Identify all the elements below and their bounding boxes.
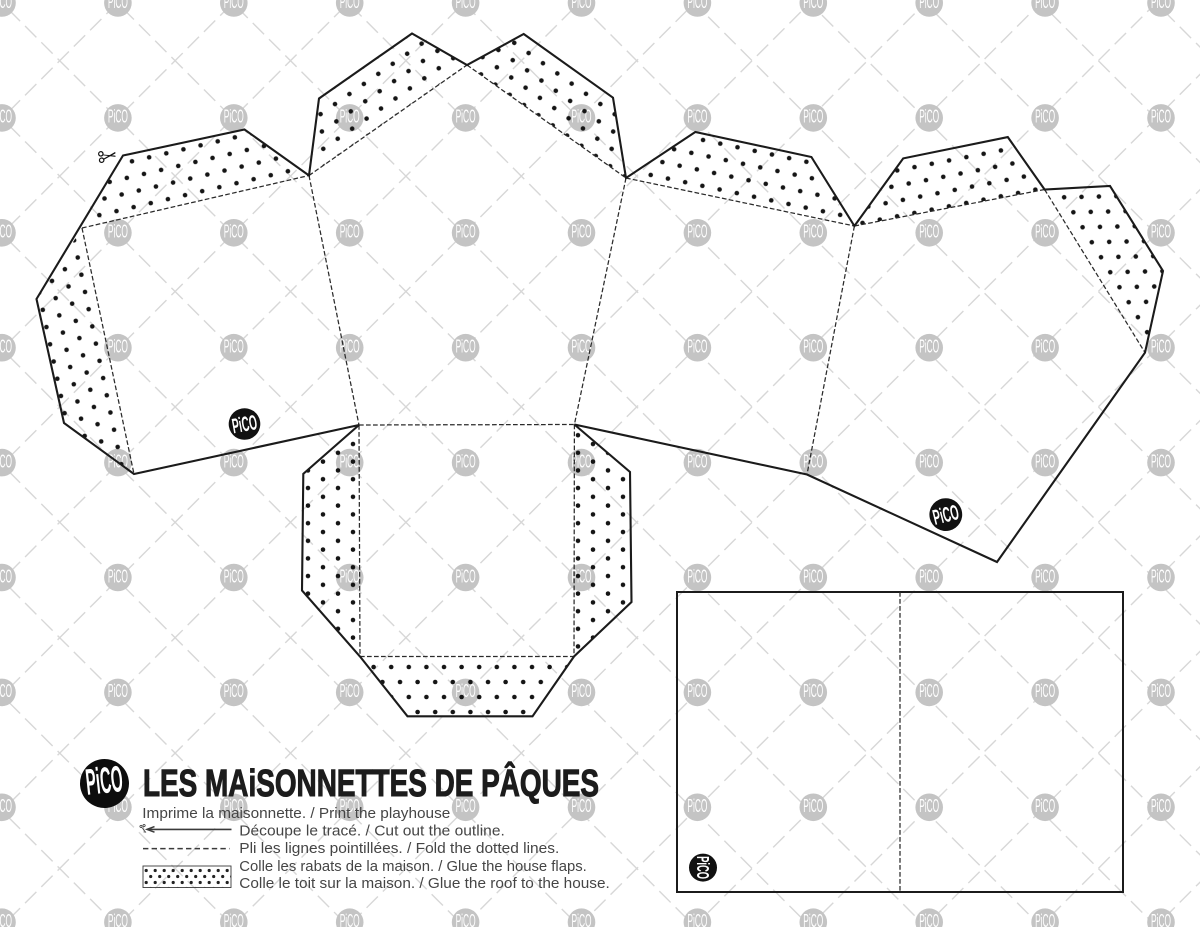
svg-text:PiCO: PiCO — [919, 681, 939, 702]
svg-text:PiCO: PiCO — [1151, 106, 1171, 127]
svg-text:PiCO: PiCO — [84, 759, 125, 804]
svg-text:PiCO: PiCO — [687, 911, 707, 927]
svg-text:PiCO: PiCO — [1035, 681, 1055, 702]
svg-text:PiCO: PiCO — [687, 681, 707, 702]
svg-text:PiCO: PiCO — [340, 0, 360, 12]
svg-text:PiCO: PiCO — [340, 681, 360, 702]
svg-text:PiCO: PiCO — [0, 0, 12, 12]
svg-text:PiCO: PiCO — [224, 566, 244, 587]
svg-text:PiCO: PiCO — [1035, 566, 1055, 587]
svg-text:PiCO: PiCO — [0, 911, 12, 927]
svg-text:PiCO: PiCO — [919, 911, 939, 927]
svg-text:PiCO: PiCO — [0, 681, 12, 702]
svg-text:PiCO: PiCO — [1151, 451, 1171, 472]
svg-text:Colle le toit sur la maison. /: Colle le toit sur la maison. / Glue the … — [239, 876, 610, 892]
svg-text:PiCO: PiCO — [803, 106, 823, 127]
svg-text:Imprime la maisonnette. / Prin: Imprime la maisonnette. / Print the play… — [142, 806, 450, 822]
svg-text:PiCO: PiCO — [1035, 0, 1055, 12]
svg-text:PiCO: PiCO — [224, 681, 244, 702]
svg-text:PiCO: PiCO — [919, 566, 939, 587]
svg-text:PiCO: PiCO — [456, 0, 476, 12]
svg-text:PiCO: PiCO — [108, 911, 128, 927]
svg-text:PiCO: PiCO — [108, 0, 128, 12]
svg-text:PiCO: PiCO — [0, 796, 12, 817]
svg-text:PiCO: PiCO — [1035, 336, 1055, 357]
svg-text:PiCO: PiCO — [919, 0, 939, 12]
svg-text:Colle les rabats de la maison.: Colle les rabats de la maison. / Glue th… — [239, 859, 587, 875]
svg-text:PiCO: PiCO — [0, 336, 12, 357]
svg-text:PiCO: PiCO — [919, 796, 939, 817]
svg-text:PiCO: PiCO — [340, 221, 360, 242]
svg-text:PiCO: PiCO — [572, 221, 592, 242]
svg-text:PiCO: PiCO — [1035, 796, 1055, 817]
svg-text:PiCO: PiCO — [803, 221, 823, 242]
svg-text:PiCO: PiCO — [1151, 681, 1171, 702]
svg-text:PiCO: PiCO — [224, 911, 244, 927]
svg-text:PiCO: PiCO — [803, 566, 823, 587]
svg-text:PiCO: PiCO — [803, 0, 823, 12]
svg-text:PiCO: PiCO — [803, 911, 823, 927]
svg-text:PiCO: PiCO — [1151, 796, 1171, 817]
svg-text:PiCO: PiCO — [340, 911, 360, 927]
svg-text:PiCO: PiCO — [803, 336, 823, 357]
svg-text:PiCO: PiCO — [803, 451, 823, 472]
svg-text:PiCO: PiCO — [0, 566, 12, 587]
svg-text:PiCO: PiCO — [224, 336, 244, 357]
svg-text:PiCO: PiCO — [0, 451, 12, 472]
svg-text:PiCO: PiCO — [919, 336, 939, 357]
svg-text:PiCO: PiCO — [803, 681, 823, 702]
svg-text:PiCO: PiCO — [919, 451, 939, 472]
svg-text:PiCO: PiCO — [1151, 336, 1171, 357]
svg-text:PiCO: PiCO — [108, 221, 128, 242]
svg-text:PiCO: PiCO — [1035, 221, 1055, 242]
svg-text:PiCO: PiCO — [108, 681, 128, 702]
svg-text:PiCO: PiCO — [687, 336, 707, 357]
svg-text:PiCO: PiCO — [108, 336, 128, 357]
svg-text:PiCO: PiCO — [572, 911, 592, 927]
svg-text:PiCO: PiCO — [1035, 451, 1055, 472]
svg-text:PiCO: PiCO — [687, 0, 707, 12]
svg-text:PiCO: PiCO — [456, 911, 476, 927]
svg-text:PiCO: PiCO — [340, 336, 360, 357]
svg-text:PiCO: PiCO — [224, 221, 244, 242]
svg-text:PiCO: PiCO — [456, 336, 476, 357]
svg-text:PiCO: PiCO — [1151, 911, 1171, 927]
svg-text:PiCO: PiCO — [456, 451, 476, 472]
svg-text:PiCO: PiCO — [687, 221, 707, 242]
svg-text:PiCO: PiCO — [687, 106, 707, 127]
svg-text:PiCO: PiCO — [1035, 106, 1055, 127]
svg-text:PiCO: PiCO — [572, 0, 592, 12]
svg-text:PiCO: PiCO — [0, 106, 12, 127]
svg-text:PiCO: PiCO — [456, 106, 476, 127]
svg-text:LES MAiSONNETTES DE PÂQUES: LES MAiSONNETTES DE PÂQUES — [143, 761, 599, 805]
svg-text:PiCO: PiCO — [572, 681, 592, 702]
svg-text:PiCO: PiCO — [919, 106, 939, 127]
svg-text:PiCO: PiCO — [803, 796, 823, 817]
svg-text:PiCO: PiCO — [108, 106, 128, 127]
svg-text:PiCO: PiCO — [1151, 221, 1171, 242]
svg-text:Pli les lignes pointillées. /: Pli les lignes pointillées. / Fold the d… — [239, 841, 559, 857]
svg-text:PiCO: PiCO — [687, 451, 707, 472]
svg-text:PiCO: PiCO — [456, 221, 476, 242]
svg-text:PiCO: PiCO — [230, 410, 259, 438]
svg-text:PiCO: PiCO — [919, 221, 939, 242]
svg-text:PiCO: PiCO — [224, 0, 244, 12]
svg-text:PiCO: PiCO — [0, 221, 12, 242]
svg-text:PiCO: PiCO — [456, 566, 476, 587]
svg-text:Découpe le tracé. / Cut out th: Découpe le tracé. / Cut out the outline. — [239, 824, 505, 840]
svg-text:PiCO: PiCO — [1035, 911, 1055, 927]
svg-text:PiCO: PiCO — [108, 566, 128, 587]
svg-text:PiCO: PiCO — [692, 856, 712, 879]
svg-text:PiCO: PiCO — [1151, 0, 1171, 12]
svg-text:PiCO: PiCO — [224, 106, 244, 127]
svg-text:PiCO: PiCO — [687, 566, 707, 587]
svg-text:PiCO: PiCO — [687, 796, 707, 817]
svg-text:PiCO: PiCO — [572, 336, 592, 357]
svg-text:PiCO: PiCO — [1151, 566, 1171, 587]
